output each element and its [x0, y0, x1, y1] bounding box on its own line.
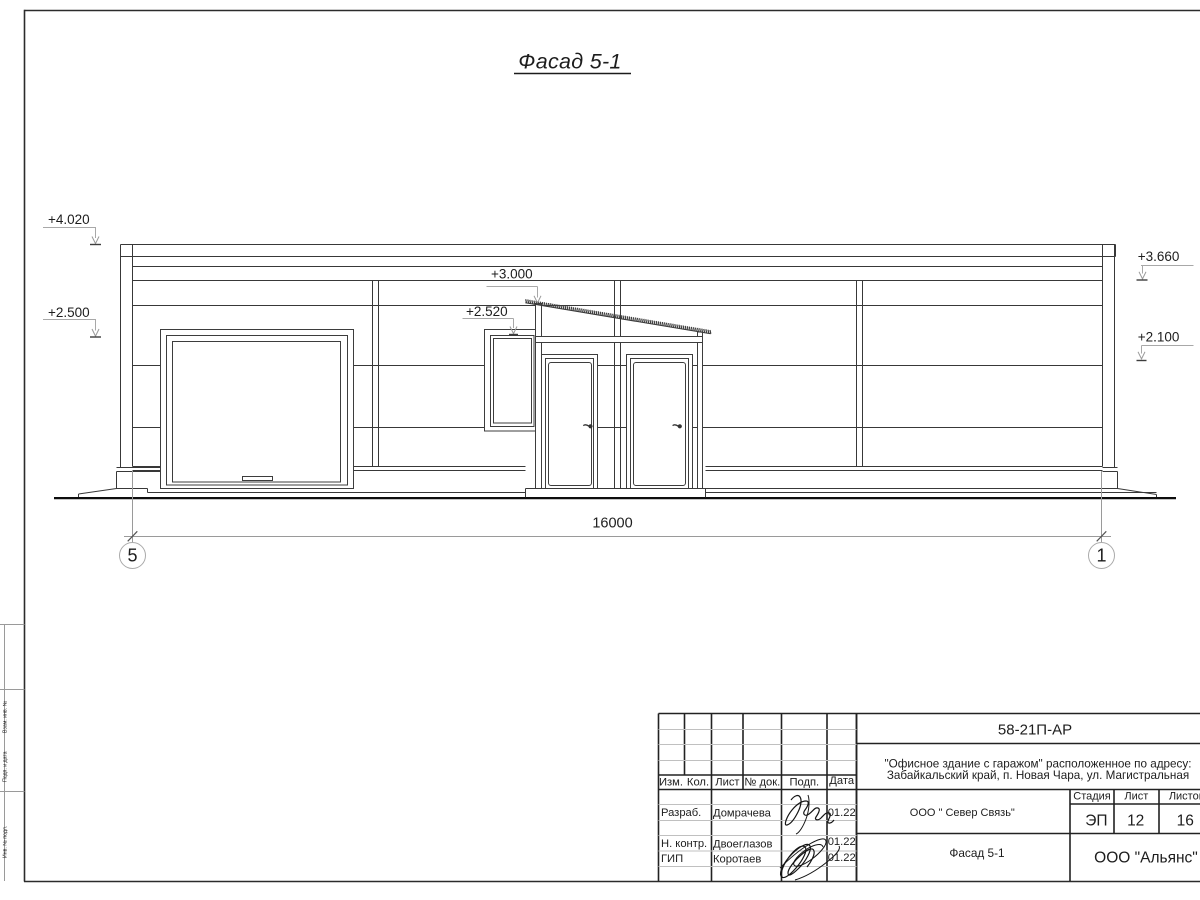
- svg-text:Домрачева: Домрачева: [713, 808, 772, 820]
- svg-text:Лист: Лист: [715, 776, 739, 788]
- svg-text:58-21П-АР: 58-21П-АР: [998, 722, 1072, 739]
- svg-text:+4.020: +4.020: [48, 212, 90, 227]
- svg-text:12: 12: [1127, 813, 1144, 830]
- svg-text:01.22: 01.22: [828, 807, 856, 819]
- svg-text:Изм.: Изм.: [659, 776, 683, 788]
- svg-text:ООО " Север Связь": ООО " Север Связь": [910, 807, 1015, 819]
- svg-text:Инв. № подл.: Инв. № подл.: [3, 826, 9, 858]
- svg-text:Разраб.: Разраб.: [661, 807, 701, 819]
- svg-text:+3.660: +3.660: [1138, 249, 1180, 264]
- svg-text:ЭП: ЭП: [1085, 813, 1107, 830]
- svg-text:Взам. инв. №: Взам. инв. №: [3, 700, 9, 733]
- svg-text:ООО "Альянс": ООО "Альянс": [1094, 850, 1198, 867]
- svg-text:№ док.: № док.: [744, 776, 780, 788]
- svg-text:Подп.: Подп.: [789, 776, 819, 788]
- svg-text:Фасад 5-1: Фасад 5-1: [518, 50, 621, 74]
- svg-text:+2.500: +2.500: [48, 305, 90, 320]
- svg-text:Н. контр.: Н. контр.: [661, 838, 707, 850]
- svg-text:01.22: 01.22: [828, 836, 856, 848]
- svg-text:Забайкальский край, п. Новая Ч: Забайкальский край, п. Новая Чара, ул. М…: [887, 769, 1189, 782]
- svg-text:+2.100: +2.100: [1138, 329, 1180, 344]
- svg-text:Листов: Листов: [1169, 790, 1200, 802]
- svg-text:Коротаев: Коротаев: [713, 854, 761, 866]
- svg-text:Кол.: Кол.: [687, 776, 709, 788]
- svg-text:Стадия: Стадия: [1073, 790, 1111, 802]
- svg-text:Лист: Лист: [1124, 790, 1148, 802]
- svg-text:+2.520: +2.520: [466, 304, 508, 319]
- svg-text:Двоеглазов: Двоеглазов: [713, 839, 773, 851]
- svg-text:16: 16: [1177, 813, 1194, 830]
- svg-text:16000: 16000: [592, 516, 632, 532]
- svg-text:5: 5: [127, 546, 137, 566]
- svg-text:1: 1: [1096, 546, 1106, 566]
- svg-text:+3.000: +3.000: [491, 267, 533, 282]
- svg-text:Дата: Дата: [829, 775, 855, 787]
- svg-text:Фасад 5-1: Фасад 5-1: [949, 846, 1004, 860]
- svg-text:Подп. и дата: Подп. и дата: [3, 751, 9, 782]
- svg-text:ГИП: ГИП: [661, 853, 683, 865]
